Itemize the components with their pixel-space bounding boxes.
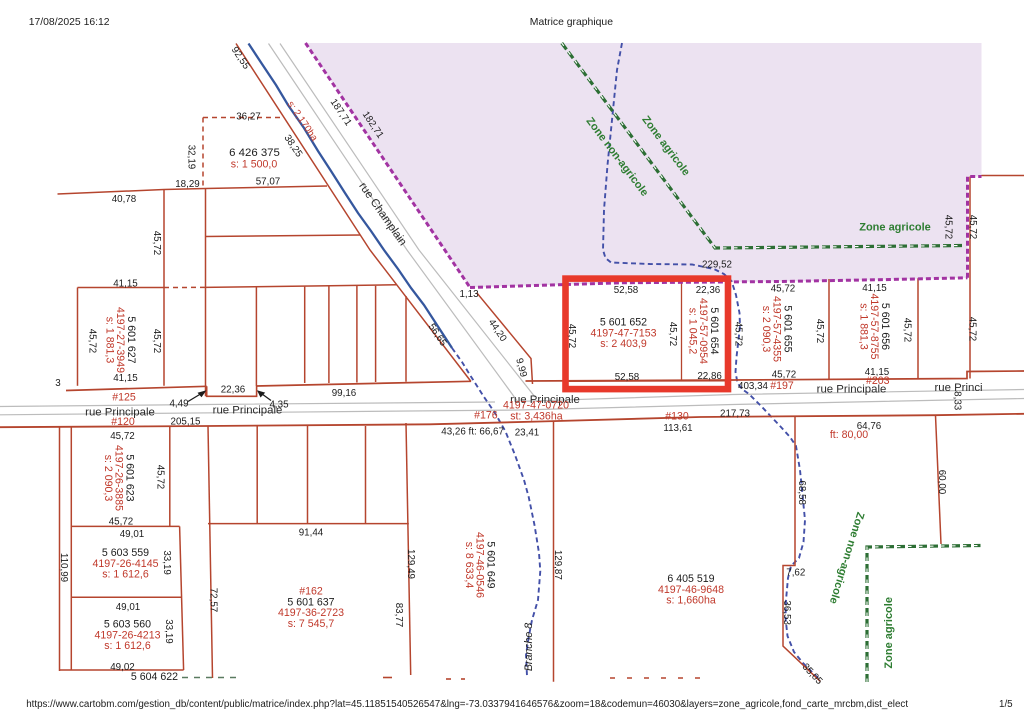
svg-text:49,02: 49,02 (110, 662, 135, 673)
svg-text:s: 1 612,6: s: 1 612,6 (104, 640, 151, 652)
svg-text:18,29: 18,29 (175, 179, 200, 190)
svg-text:s: 1 045,2: s: 1 045,2 (687, 308, 699, 355)
svg-text:23,41: 23,41 (515, 428, 540, 439)
svg-text:45,72: 45,72 (110, 431, 135, 442)
svg-text:Zone agricole: Zone agricole (883, 597, 895, 669)
svg-text:#197: #197 (770, 380, 794, 392)
svg-text:36,27: 36,27 (236, 112, 261, 123)
svg-text:17/08/2025 16:12: 17/08/2025 16:12 (29, 17, 110, 28)
svg-text:s: 7 545,7: s: 7 545,7 (288, 618, 335, 630)
svg-text:45,72: 45,72 (902, 318, 913, 343)
svg-text:41,15: 41,15 (113, 279, 138, 290)
svg-text:3: 3 (55, 378, 61, 389)
svg-text:99,16: 99,16 (332, 388, 357, 399)
svg-text:#120: #120 (111, 416, 135, 428)
svg-text:22,36: 22,36 (221, 384, 246, 395)
svg-text:57,07: 57,07 (256, 177, 281, 188)
svg-text:36,53: 36,53 (781, 600, 792, 625)
svg-text:22,86: 22,86 (697, 371, 722, 382)
svg-text:1/5: 1/5 (999, 699, 1013, 710)
svg-text:https://www.cartobm.com/gestio: https://www.cartobm.com/gestion_db/conte… (26, 699, 908, 710)
svg-text:Matrice graphique: Matrice graphique (530, 17, 613, 28)
svg-text:s: 1 881,3: s: 1 881,3 (104, 317, 116, 364)
svg-text:45,72: 45,72 (109, 516, 134, 527)
svg-text:33,19: 33,19 (163, 619, 174, 644)
svg-text:s: 1 612,6: s: 1 612,6 (102, 569, 149, 581)
svg-text:33,19: 33,19 (161, 550, 172, 575)
svg-text:1,13: 1,13 (459, 289, 479, 300)
svg-text:217,73: 217,73 (720, 409, 751, 420)
svg-text:22,36: 22,36 (696, 285, 721, 296)
svg-text:45,72: 45,72 (667, 322, 678, 347)
svg-text:4,35: 4,35 (269, 400, 289, 411)
svg-text:45,72: 45,72 (87, 329, 98, 354)
svg-text:41,15: 41,15 (862, 283, 887, 294)
svg-text:Zone agricole: Zone agricole (859, 222, 931, 234)
svg-text:229,52: 229,52 (702, 260, 732, 271)
svg-text:#130: #130 (665, 411, 689, 423)
svg-text:83,77: 83,77 (393, 603, 404, 628)
svg-text:#176: #176 (474, 410, 498, 422)
svg-text:72,57: 72,57 (208, 588, 219, 613)
svg-text:45,72: 45,72 (151, 329, 162, 354)
svg-text:403,34: 403,34 (738, 381, 769, 392)
svg-text:s: 1 500,0: s: 1 500,0 (231, 159, 278, 171)
svg-text:52,58: 52,58 (614, 285, 639, 296)
svg-text:43,26 ft: 66,67: 43,26 ft: 66,67 (441, 427, 504, 438)
svg-text:s: 1 881,3: s: 1 881,3 (857, 303, 869, 350)
svg-text:45,72: 45,72 (151, 231, 162, 256)
svg-text:205,15: 205,15 (171, 417, 202, 428)
svg-text:45,72: 45,72 (154, 465, 165, 490)
svg-text:45,72: 45,72 (772, 370, 797, 381)
svg-text:s: 2 090,3: s: 2 090,3 (760, 306, 772, 353)
svg-text:129,49: 129,49 (405, 549, 416, 579)
svg-text:4197-47-0720: 4197-47-0720 (503, 400, 569, 412)
svg-text:45,72: 45,72 (943, 215, 954, 240)
svg-text:s: 2 403,9: s: 2 403,9 (600, 338, 647, 350)
svg-text:5 604 622: 5 604 622 (131, 671, 178, 683)
svg-text:45,72: 45,72 (814, 319, 825, 344)
svg-text:91,44: 91,44 (299, 528, 324, 539)
svg-text:st: 3,436ha: st: 3,436ha (510, 411, 563, 423)
svg-text:45,72: 45,72 (966, 317, 977, 342)
svg-text:45,72: 45,72 (733, 322, 744, 347)
svg-text:8,33: 8,33 (951, 391, 962, 411)
svg-text:4,49: 4,49 (169, 399, 188, 410)
svg-text:41,15: 41,15 (113, 373, 138, 384)
svg-text:45,72: 45,72 (967, 215, 978, 240)
svg-text:68,58: 68,58 (796, 480, 807, 505)
svg-text:s: 1,660ha: s: 1,660ha (666, 595, 716, 607)
svg-text:41,15: 41,15 (865, 367, 890, 378)
svg-text:49,01: 49,01 (120, 529, 145, 540)
svg-text:113,61: 113,61 (663, 423, 692, 434)
svg-text:129,87: 129,87 (552, 550, 563, 580)
svg-text:s: 2 090,3: s: 2 090,3 (102, 455, 114, 502)
svg-text:60,00: 60,00 (936, 470, 947, 495)
svg-text:40,78: 40,78 (112, 194, 137, 205)
svg-text:64,76: 64,76 (857, 421, 882, 432)
svg-text:6 426 375: 6 426 375 (229, 147, 280, 159)
svg-text:110,99: 110,99 (58, 553, 69, 582)
svg-text:49,01: 49,01 (116, 602, 141, 613)
svg-text:#125: #125 (112, 392, 136, 404)
svg-text:Branche 8: Branche 8 (523, 623, 535, 671)
svg-text:32,19: 32,19 (186, 145, 197, 170)
svg-text:7,62: 7,62 (786, 568, 805, 579)
svg-text:s: 8 633,4: s: 8 633,4 (463, 542, 475, 589)
svg-text:52,58: 52,58 (615, 372, 640, 383)
svg-text:45,72: 45,72 (771, 284, 796, 295)
svg-text:45,72: 45,72 (566, 324, 577, 349)
